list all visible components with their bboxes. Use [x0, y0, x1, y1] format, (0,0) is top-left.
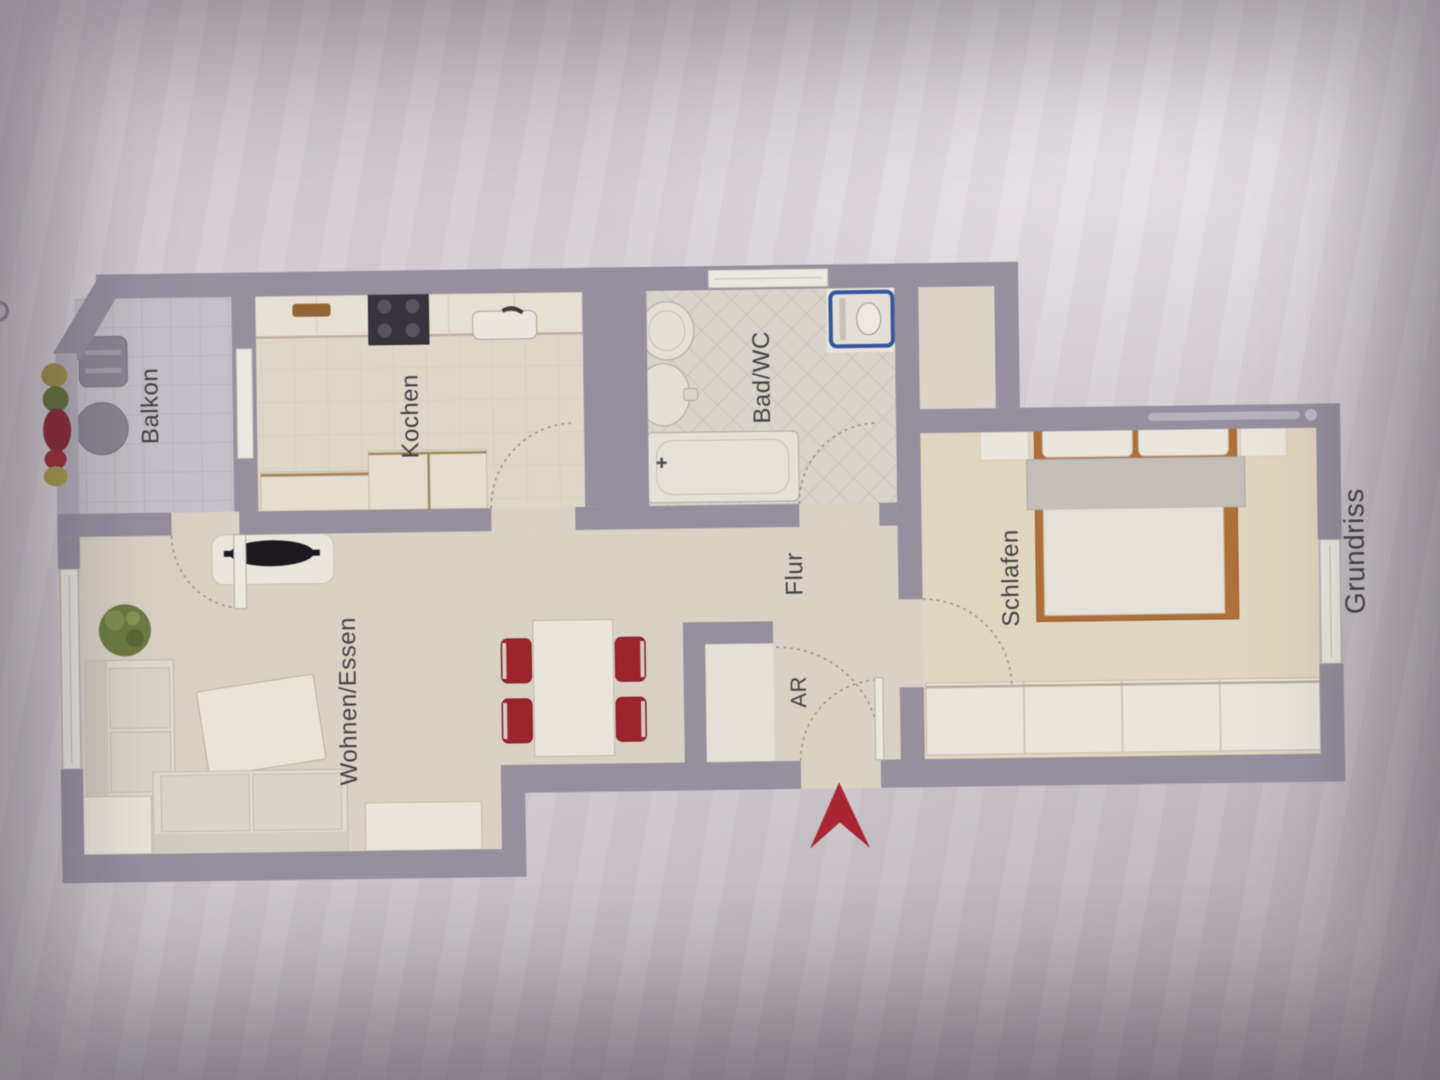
wall-band-b	[239, 508, 491, 535]
wall-left-upper	[58, 537, 80, 569]
opening-balcony-door	[171, 512, 239, 536]
sofa-left-back	[85, 661, 109, 799]
wall-band-a	[57, 513, 171, 538]
room-label-kochen: Kochen	[396, 374, 424, 459]
washer-drum	[856, 303, 880, 335]
opening-entry-door	[801, 760, 881, 789]
wall-band-d	[879, 503, 897, 526]
opening-kitchen-door	[491, 507, 575, 531]
bed-blanket	[1027, 457, 1246, 510]
photographed-floor-plan-page: Balkon Kochen Bad/WC Flur AR Wohnen/Esse…	[0, 0, 1440, 1080]
wall-band-c	[575, 504, 799, 530]
stove	[368, 292, 429, 345]
room-label-flur: Flur	[781, 552, 809, 596]
sofa-cushion	[109, 668, 170, 729]
toilet-flush	[684, 388, 698, 400]
sofa-cushion	[161, 775, 250, 832]
lower-counter-left	[261, 471, 372, 512]
sofa-cushion	[253, 773, 342, 830]
wall-bottom-mid-left	[525, 761, 801, 793]
door-leaf-entry	[875, 678, 884, 760]
washer-detail	[842, 298, 843, 340]
room-label-bad-wc: Bad/WC	[748, 331, 776, 424]
room-label-wohnen-essen: Wohnen/Essen	[334, 617, 363, 786]
wall-kitchen-bath	[582, 267, 649, 507]
wood-edge	[261, 474, 371, 476]
wall-bottom-mid-right	[881, 759, 901, 787]
side-table	[83, 796, 152, 855]
sideboard	[365, 801, 482, 851]
room-label-balkon: Balkon	[136, 368, 164, 445]
wall-ar-top	[683, 621, 773, 644]
bath-sink	[639, 301, 694, 360]
plan-title: Grundriss	[1338, 488, 1371, 614]
window-balcony-kitchen	[236, 349, 254, 459]
dining-table	[533, 620, 615, 757]
wall-niche-right	[994, 286, 1020, 408]
balcony-table	[76, 402, 129, 455]
bed-duvet	[1043, 507, 1224, 616]
floor-plan-drawing: Balkon Kochen Bad/WC Flur AR Wohnen/Esse…	[0, 0, 1440, 1080]
kitchen-sink	[473, 311, 537, 340]
wall-left-lower	[61, 769, 84, 855]
opening-bedroom-door	[899, 599, 924, 687]
niche-floor	[918, 286, 996, 409]
bathtub	[646, 431, 799, 503]
entrance-arrow	[809, 782, 870, 849]
opening-bath-door	[799, 503, 879, 527]
room-label-schlafen: Schlafen	[997, 529, 1025, 627]
room-label-ar: AR	[786, 676, 811, 708]
coffee-table	[196, 674, 326, 777]
storage-closet	[705, 643, 775, 762]
door-leaf-balcony	[234, 535, 247, 609]
page-edge-mark	[0, 302, 8, 320]
cutting-board	[292, 303, 330, 317]
